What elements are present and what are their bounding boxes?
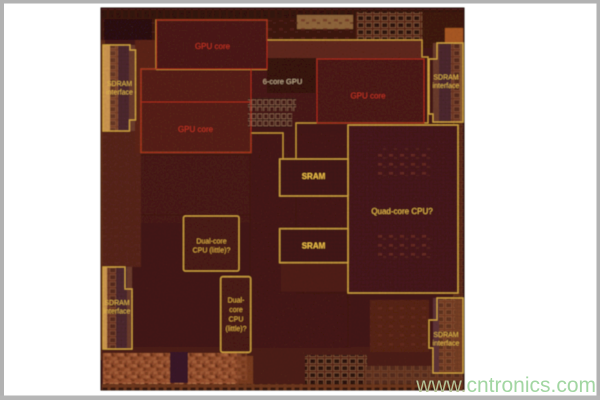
svg-text:SRAM: SRAM bbox=[302, 172, 326, 181]
svg-text:GPU core: GPU core bbox=[350, 92, 386, 101]
svg-text:SDRAM: SDRAM bbox=[104, 300, 129, 307]
svg-text:Dual-: Dual- bbox=[228, 298, 245, 305]
svg-text:interface: interface bbox=[433, 341, 460, 348]
svg-text:Dual-core: Dual-core bbox=[196, 239, 226, 246]
svg-text:interface: interface bbox=[433, 83, 460, 90]
svg-text:SRAM: SRAM bbox=[302, 242, 326, 251]
svg-text:GPU core: GPU core bbox=[178, 125, 214, 134]
svg-text:6-core GPU: 6-core GPU bbox=[263, 77, 303, 86]
svg-text:Quad-core CPU?: Quad-core CPU? bbox=[371, 207, 433, 216]
svg-text:interface: interface bbox=[106, 90, 133, 97]
svg-text:CPU: CPU bbox=[229, 317, 244, 324]
svg-text:interface: interface bbox=[104, 309, 131, 316]
svg-text:core: core bbox=[229, 307, 243, 314]
svg-text:SDRAM: SDRAM bbox=[433, 75, 458, 82]
svg-text:(little)?: (little)? bbox=[225, 326, 246, 333]
svg-text:CPU (little)?: CPU (little)? bbox=[193, 248, 231, 255]
svg-text:SDRAM: SDRAM bbox=[107, 81, 132, 88]
svg-text:GPU core: GPU core bbox=[195, 42, 231, 51]
svg-text:SDRAM: SDRAM bbox=[433, 332, 458, 339]
